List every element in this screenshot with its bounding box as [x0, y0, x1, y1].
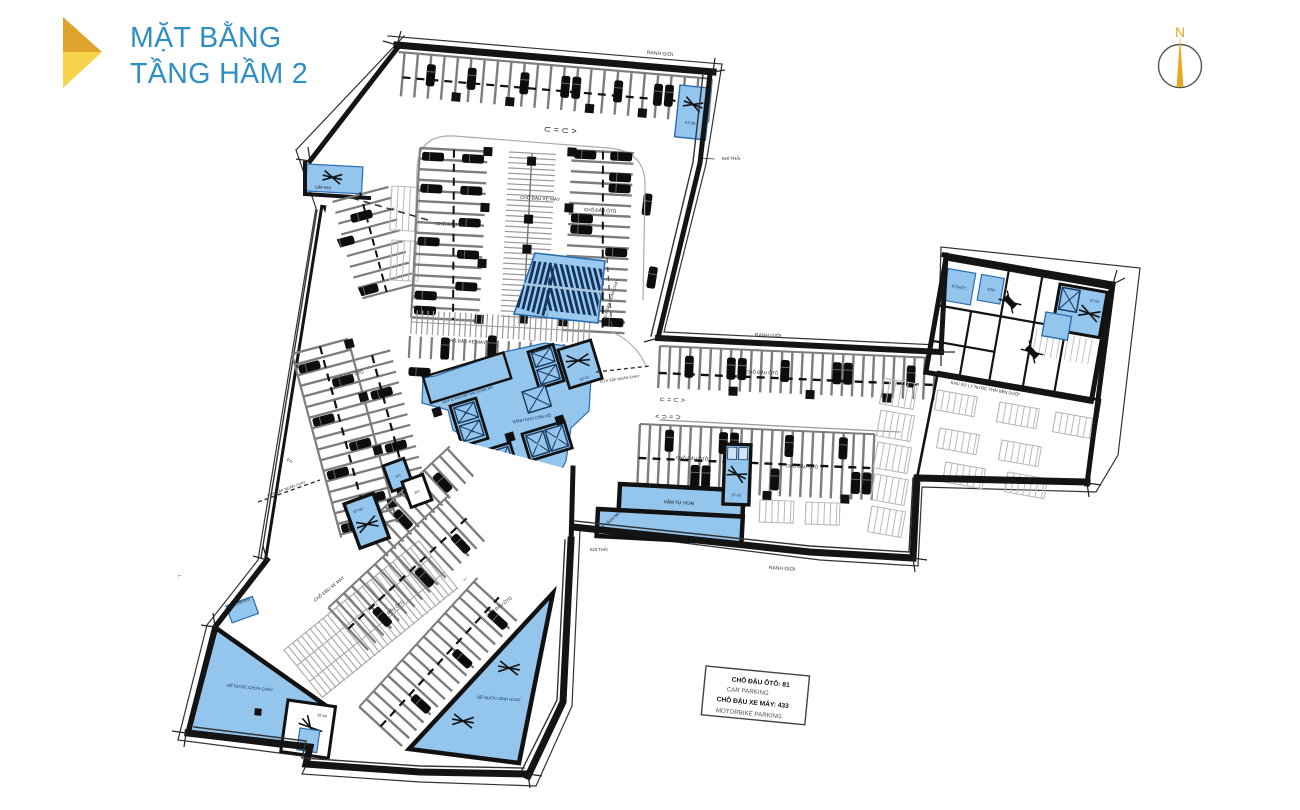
svg-text:←: ← — [177, 572, 184, 579]
svg-text:←: ← — [528, 337, 535, 344]
svg-text:RANH GIỚI: RANH GIỚI — [755, 332, 782, 340]
svg-text:KHÍ THẢI: KHÍ THẢI — [590, 547, 608, 552]
svg-text:⊂ = ⊂ >: ⊂ = ⊂ > — [659, 396, 685, 404]
svg-text:ST-03: ST-03 — [731, 493, 741, 497]
svg-text:MẶT BẰNG: MẶT BẰNG — [130, 22, 282, 54]
svg-text:KHÍ THẢI: KHÍ THẢI — [722, 156, 740, 161]
svg-text:N: N — [1175, 24, 1185, 40]
svg-text:< ⊃ = ⊃: < ⊃ = ⊃ — [655, 413, 681, 421]
svg-text:CẤP KHÍ: CẤP KHÍ — [315, 184, 332, 190]
svg-text:TẦNG HẦM 2: TẦNG HẦM 2 — [130, 58, 308, 90]
